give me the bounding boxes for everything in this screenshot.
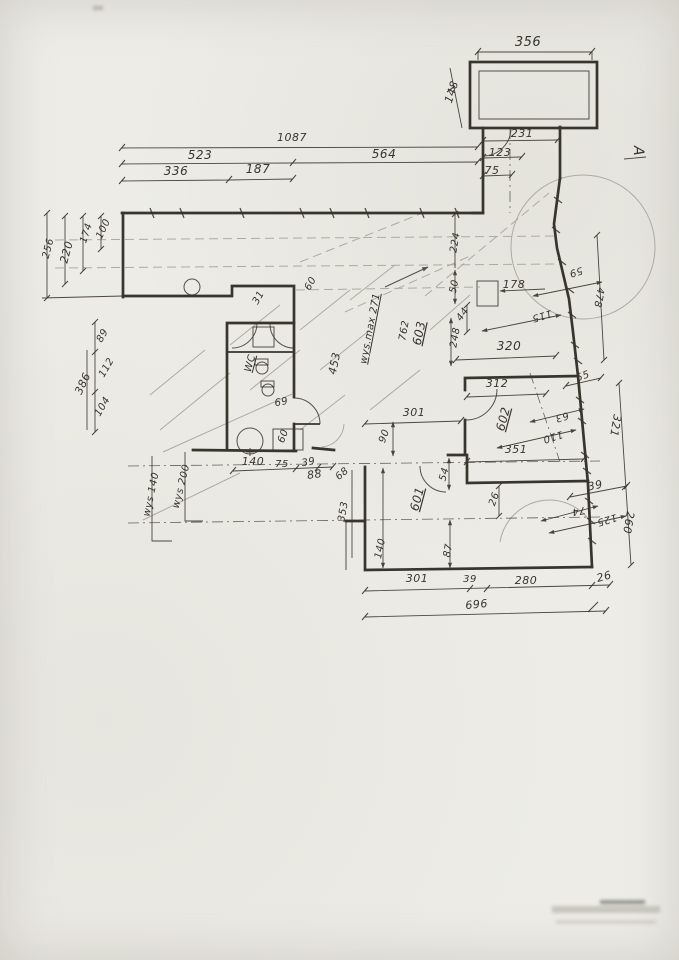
dimension-label: 54 [437,466,451,482]
dimension-label: 220 [57,240,75,265]
dimension-label: 336 [164,164,188,178]
pencil-circle [511,175,655,319]
dimension-label: 59 [568,264,584,279]
room-number-label: 602 [493,405,513,432]
dimension-label: 478 [591,286,605,308]
floor-plan-drawing: 3561482311237510875235643361871001742202… [0,0,679,960]
dimension-label: 187 [246,162,270,176]
section-marker-line [624,157,646,159]
toilet-bowl [262,384,274,396]
dimension-label: 104 [93,395,113,418]
dimension-label: 523 [188,148,212,162]
dimension-label: 89 [95,327,111,344]
dimension-label: 248 [448,326,462,348]
room-number-label: 603 [410,320,429,347]
dimension-label: 1087 [277,131,307,144]
dimension-label: 301 [406,572,429,585]
height-annotation: wys 140 [141,471,161,517]
dimension-label: 301 [403,406,426,419]
dimension-label: 31 [251,289,267,306]
dimension-label: 178 [503,278,526,291]
wall-entrance-left [473,128,483,213]
dimension-label: 351 [505,443,528,456]
labels-layer: 3561482311237510875235643361871001742202… [41,35,646,612]
dimension-label: 69 [274,396,290,410]
dimension-label: 88 [306,467,323,482]
dimension-label: 353 [336,500,350,522]
dimension-label: 63 [554,409,570,424]
section-marker-label: A [630,145,646,156]
dimension-label: 312 [486,377,509,390]
dimension-label: 87 [442,543,455,559]
balcony-inner-wall [479,71,589,119]
pencil-construction-lines [55,128,655,542]
toilet-bowl [256,362,268,374]
pillar [477,281,498,306]
dimension-label: 110 [541,428,564,445]
dimension-label: 75 [275,459,289,470]
pointer-arrow [385,267,428,287]
dimension-label: 123 [489,146,512,159]
dimension-label: 112 [97,356,117,379]
column-circle [184,279,200,295]
dimension-label: 140 [242,455,265,468]
dimension-label: 564 [372,147,396,161]
door-arc-602 [466,389,497,420]
roof-slope-hatching [143,265,470,520]
dimension-label: 260 [620,510,637,534]
dimension-label: 100 [94,217,113,240]
scan-smudges [93,6,660,924]
dimension-label: 386 [72,371,93,397]
dimension-label: 26 [595,568,613,584]
balcony-outer-wall [470,62,597,128]
dimension-label: 256 [41,237,57,260]
dimension-label: 39 [301,456,316,469]
dimension-lines-layer [42,48,646,620]
dimension-label: 26 [487,491,502,508]
height-annotation: wys.max 271 [358,292,383,365]
dimension-label: 453 [326,351,343,376]
door-arc-wc-exit [294,398,320,424]
dimension-label: 148 [442,79,461,104]
dimension-label: 696 [465,597,489,612]
dimension-label: 44 [455,306,472,324]
dimension-label: 140 [373,537,388,559]
dimension-label: 115 [530,307,553,324]
room-number-label: 601 [407,485,427,512]
wall-stub [313,448,334,450]
room-number-label: WC [243,353,258,373]
wall-corridor [123,286,294,323]
dimension-label: 224 [448,231,462,253]
dimension-label: 174 [78,222,95,245]
dimension-label: 356 [515,35,541,50]
height-annotation: wys 200 [171,463,193,509]
dimension-label: 74 [571,504,586,517]
dimension-label: 68 [334,465,352,482]
dimension-label: 90 [377,428,392,445]
dimension-label: 280 [515,574,538,587]
dimension-label: 60 [276,428,291,445]
dimension-label: 320 [497,339,521,353]
dimension-ticks [44,48,634,620]
dimension-label: 321 [607,413,624,437]
scanned-floor-plan-sheet: 3561482311237510875235643361871001742202… [0,0,679,960]
dimension-label: 125 [595,511,618,528]
dimension-label: 50 [448,279,462,295]
dimension-label: 75 [485,164,500,177]
dimension-label: 39 [463,574,477,585]
dimension-label: 231 [511,127,534,140]
door-arc-stub [322,424,344,447]
dimension-label: 762 [397,319,411,341]
wall-room-602 [448,376,588,483]
